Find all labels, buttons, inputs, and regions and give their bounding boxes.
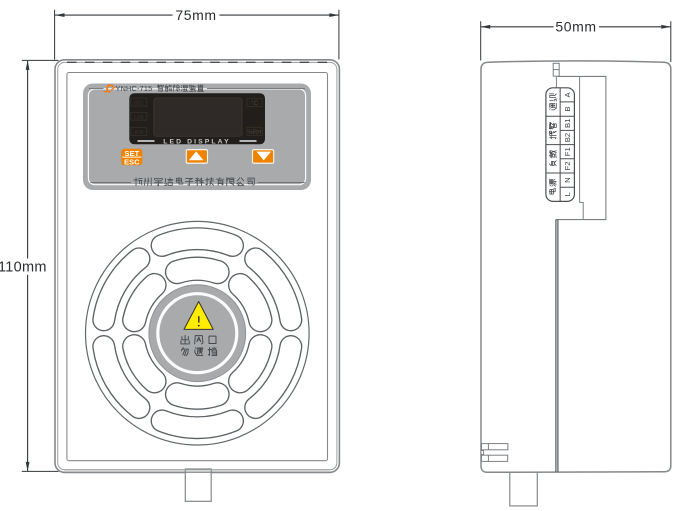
- svg-text:50mm: 50mm: [555, 19, 596, 35]
- svg-text:N: N: [563, 177, 572, 183]
- svg-text:A/N: A/N: [134, 130, 143, 136]
- svg-text:B: B: [563, 107, 572, 112]
- svg-text:ESC: ESC: [124, 157, 140, 166]
- svg-text:75mm: 75mm: [175, 7, 216, 23]
- svg-text:LED DISPLAY: LED DISPLAY: [163, 139, 230, 146]
- svg-text:110mm: 110mm: [0, 259, 47, 275]
- svg-text:F2: F2: [563, 161, 572, 170]
- svg-text:L08: L08: [134, 115, 143, 121]
- svg-text:L: L: [563, 191, 572, 196]
- svg-text:°C: °C: [251, 99, 259, 107]
- svg-text:B2: B2: [563, 133, 572, 142]
- svg-text:A: A: [563, 91, 572, 97]
- svg-text:B1: B1: [563, 119, 572, 128]
- svg-text:YNHC-715: YNHC-715: [116, 84, 153, 93]
- svg-text:888: 888: [134, 101, 143, 107]
- svg-text:%RH: %RH: [247, 130, 261, 136]
- svg-text:F1: F1: [563, 147, 572, 156]
